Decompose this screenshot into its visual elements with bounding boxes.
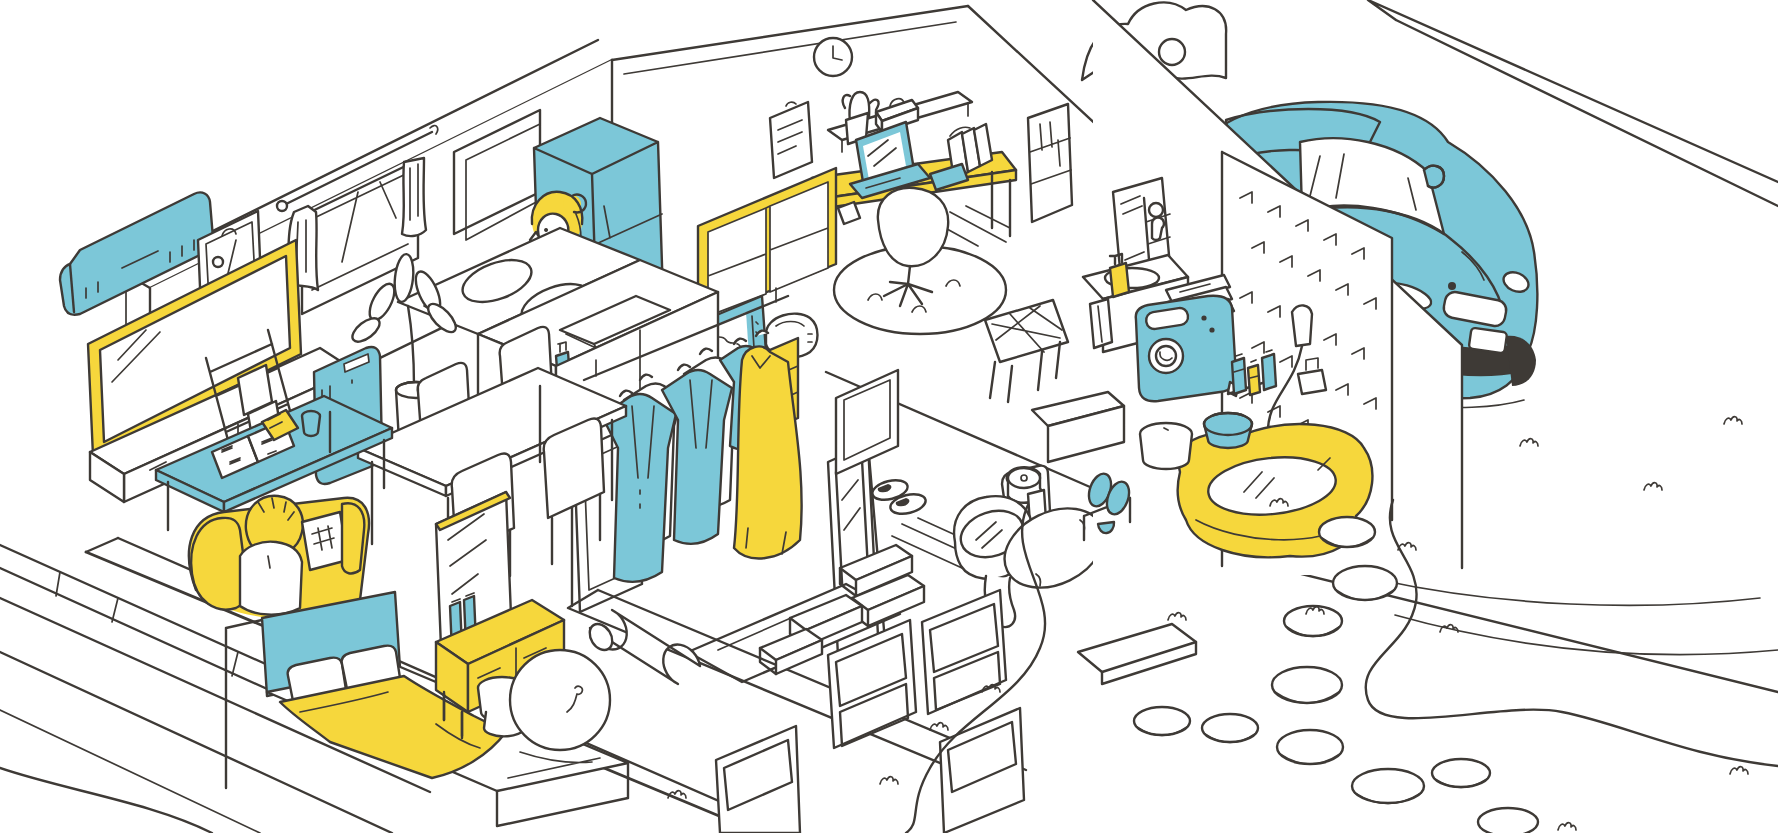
exercise-ball xyxy=(510,650,610,750)
washing-machine[interactable] xyxy=(1136,296,1238,401)
curtain xyxy=(402,158,426,236)
faucet[interactable] xyxy=(1298,370,1326,394)
toilet-window xyxy=(836,370,898,474)
laundry-basket xyxy=(985,300,1068,402)
person-sitting xyxy=(240,496,303,615)
sofa[interactable] xyxy=(189,496,369,618)
storage-bin xyxy=(940,708,1024,833)
entrance-stone xyxy=(1078,624,1196,684)
wall-clock xyxy=(814,38,852,76)
garden-path-line xyxy=(0,768,212,833)
partition-wall xyxy=(226,620,262,788)
car-license-plate xyxy=(1469,328,1508,354)
illustration-isometric-home xyxy=(0,0,1778,833)
hand-towel xyxy=(1090,299,1112,348)
bookshelf xyxy=(1028,104,1072,222)
storage-bin xyxy=(716,726,800,833)
slippers xyxy=(870,477,927,517)
scene xyxy=(0,0,1778,833)
wash-basin xyxy=(1204,413,1252,448)
storage-bin xyxy=(922,590,1006,714)
bath-stool xyxy=(1140,423,1192,469)
clipboard xyxy=(770,102,812,178)
cup xyxy=(302,411,320,436)
